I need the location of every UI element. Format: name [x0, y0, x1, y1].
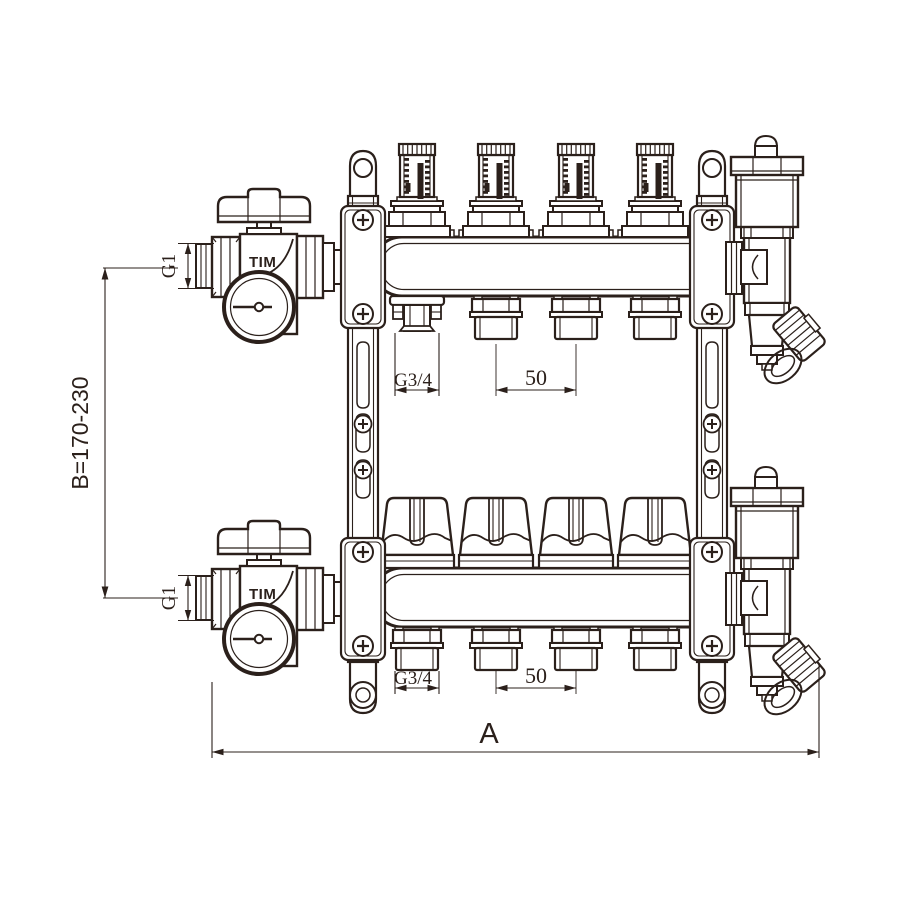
valve-knob-3: [539, 498, 613, 568]
dimension-b: B=170-230: [67, 268, 178, 598]
spacing-label-top: 50: [525, 365, 547, 390]
outlet-thread-label-bottom: G3/4: [394, 668, 433, 689]
height-range-label: B=170-230: [67, 376, 93, 489]
valve-knob-1: [380, 498, 454, 568]
dimension-50-top: 50: [496, 344, 576, 396]
outlet-bottom-3: [550, 627, 602, 670]
ball-valve-top: [196, 189, 348, 342]
outlet-top-2: [470, 296, 522, 339]
outlet-top-1: [390, 296, 444, 331]
mounting-bracket-right: [690, 151, 734, 713]
dimension-a: A: [212, 664, 819, 758]
flow-meter-4: [618, 144, 692, 237]
top-manifold-bar: [373, 228, 728, 296]
bottom-manifold-bar: [373, 568, 728, 627]
spacing-label-bottom: 50: [525, 663, 547, 688]
flow-meter-3: [539, 144, 613, 237]
ball-valve-bottom: [196, 521, 348, 674]
outlet-bottom-4: [629, 627, 681, 670]
outlet-top-4: [629, 296, 681, 339]
air-vent-drain-top: [726, 136, 830, 390]
valve-knob-4: [618, 498, 692, 568]
mounting-bracket-left: [341, 151, 385, 713]
drawing-canvas: TIM: [0, 0, 900, 900]
air-vent-drain-bottom: [726, 467, 830, 721]
outlet-bottom-1: [391, 627, 443, 670]
flow-meter-2: [459, 144, 533, 237]
dimension-g34-top: G3/4: [394, 333, 439, 396]
manifold-technical-drawing: TIM: [0, 0, 900, 900]
outlet-thread-label-top: G3/4: [394, 370, 433, 391]
dimension-g34-bottom: G3/4: [394, 668, 439, 694]
flow-meter-1: [380, 144, 454, 237]
valve-knob-2: [459, 498, 533, 568]
overall-width-label: A: [479, 718, 499, 750]
outlet-top-3: [550, 296, 602, 339]
outlet-bottom-2: [470, 627, 522, 670]
